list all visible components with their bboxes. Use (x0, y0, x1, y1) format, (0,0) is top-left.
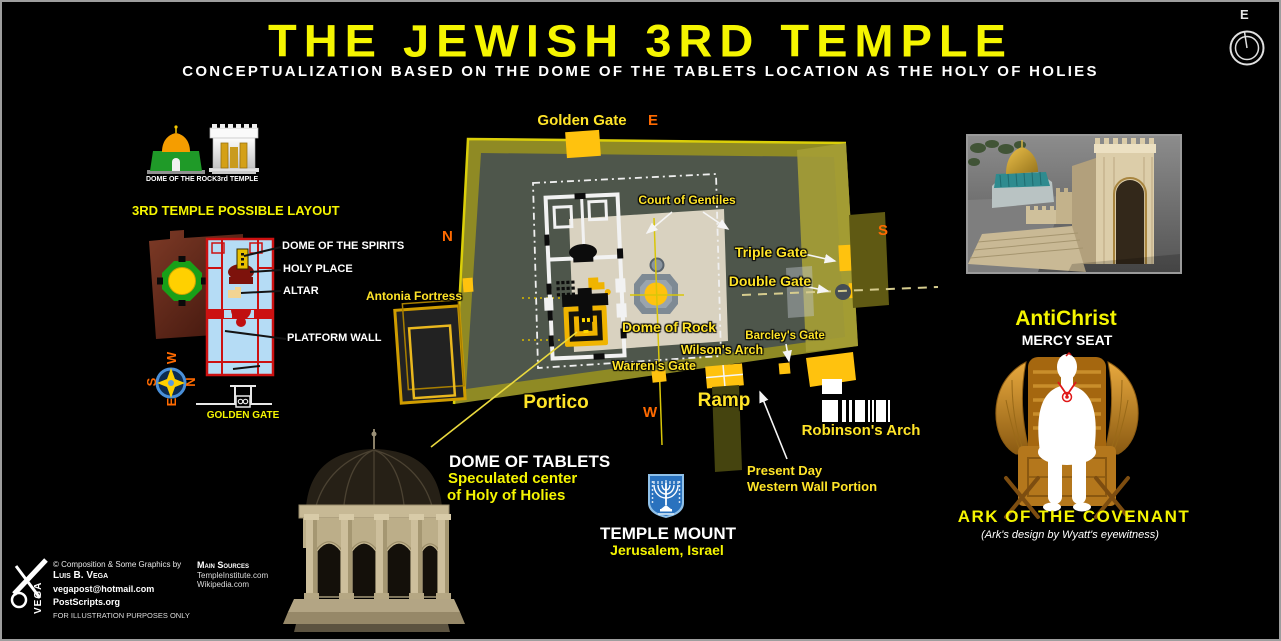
label-platform-wall: PLATFORM WALL (287, 333, 382, 345)
third-temple-layout-diagram (149, 230, 286, 407)
layout-heading: 3RD TEMPLE POSSIBLE LAYOUT (132, 204, 340, 218)
golden-gate-marker (565, 130, 601, 158)
layout-compass-e: E (165, 398, 179, 407)
map-label-triple-gate: Triple Gate (735, 245, 807, 260)
map-label-dome-of-rock: Dome of Rock (622, 320, 716, 335)
map-label-warrens-gate: Warren's Gate (612, 360, 696, 374)
callout-temple-mount: TEMPLE MOUNT (600, 525, 736, 543)
ark-title-label: ARK OF THE COVENANT (958, 508, 1191, 526)
golden-gate-icon (196, 386, 272, 407)
map-direction-n: N (442, 229, 453, 245)
label-dome-of-spirits: DOME OF THE SPIRITS (282, 241, 404, 253)
layout-compass-w: W (165, 352, 179, 364)
map-label-wilsons-arch: Wilson's Arch (681, 344, 763, 358)
ark-throne (996, 353, 1138, 517)
callout-speculated-1: Speculated center (448, 471, 577, 487)
infographic-canvas: THE JEWISH 3RD TEMPLE CONCEPTUALIZATION … (0, 0, 1281, 641)
footer-credit-name: Luis B. Vega (53, 571, 108, 582)
footer-source-2: Wikipedia.com (197, 581, 249, 590)
temple-mount-map (394, 130, 938, 472)
callout-present-day-2: Western Wall Portion (747, 480, 877, 494)
footer-website: PostScripts.org (53, 598, 120, 608)
double-gate-marker (835, 284, 851, 300)
footer-disclaimer: FOR ILLUSTRATION PURPOSES ONLY (53, 612, 190, 620)
map-label-antonia-fortress: Antonia Fortress (366, 290, 462, 303)
footer-sources-heading: Main Sources (197, 561, 249, 571)
callout-dome-of-tablets: DOME OF TABLETS (449, 453, 610, 471)
map-label-court-of-gentiles: Court of Gentiles (638, 194, 735, 207)
page-title: THE JEWISH 3RD TEMPLE (0, 17, 1281, 66)
third-temple-icon (209, 124, 259, 174)
map-label-barcleys-gate: Barcley's Gate (745, 330, 824, 342)
ark-antichrist-label: AntiChrist (1015, 308, 1117, 331)
legend-third-temple-label: 3rd TEMPLE (217, 176, 258, 184)
ark-mercy-seat-label: MERCY SEAT (1022, 333, 1113, 348)
footer-credit-by: © Composition & Some Graphics by (53, 561, 181, 570)
footer-email: vegapost@hotmail.com (53, 585, 154, 595)
dome-of-rock-icon (147, 125, 205, 174)
page-subtitle: CONCEPTUALIZATION BASED ON THE DOME OF T… (0, 64, 1281, 80)
layout-compass-s: S (145, 378, 159, 387)
map-label-double-gate: Double Gate (729, 274, 811, 289)
footer-logo-text: VEGA (34, 582, 45, 614)
antonia-fortress-outline (394, 300, 465, 403)
triple-gate-marker (838, 245, 851, 272)
layout-compass-n: N (184, 377, 198, 386)
barcleys-gate-marker (779, 362, 791, 374)
temple-model-photo (966, 134, 1182, 274)
wilsons-arch-marker (705, 363, 744, 388)
label-altar: ALTAR (283, 286, 319, 298)
label-golden-gate-small: GOLDEN GATE (207, 411, 280, 422)
callout-speculated-2: of Holy of Holies (447, 488, 565, 504)
israel-emblem (648, 474, 684, 518)
map-label-ramp: Ramp (698, 391, 751, 412)
callout-present-day-1: Present Day (747, 464, 822, 478)
dome-of-tablets-photo (283, 429, 465, 632)
label-holy-place: HOLY PLACE (283, 264, 353, 276)
map-direction-w: W (643, 405, 657, 421)
compass-east-label: E (1240, 8, 1249, 22)
layout-compass-rose (157, 368, 185, 398)
temple-floor-plan (207, 239, 273, 375)
map-label-portico: Portico (523, 393, 588, 414)
ark-note-label: (Ark's design by Wyatt's eyewitness) (981, 530, 1159, 542)
callout-temple-mount-sub: Jerusalem, Israel (610, 543, 724, 558)
legend-dome-of-rock-label: DOME OF THE ROCK (146, 176, 217, 184)
map-direction-e: E (648, 113, 658, 129)
map-label-golden-gate: Golden Gate (537, 113, 626, 129)
robinsons-arch-ruins (822, 379, 890, 422)
map-label-robinsons-arch: Robinson's Arch (802, 423, 921, 439)
map-direction-s: S (878, 223, 888, 239)
